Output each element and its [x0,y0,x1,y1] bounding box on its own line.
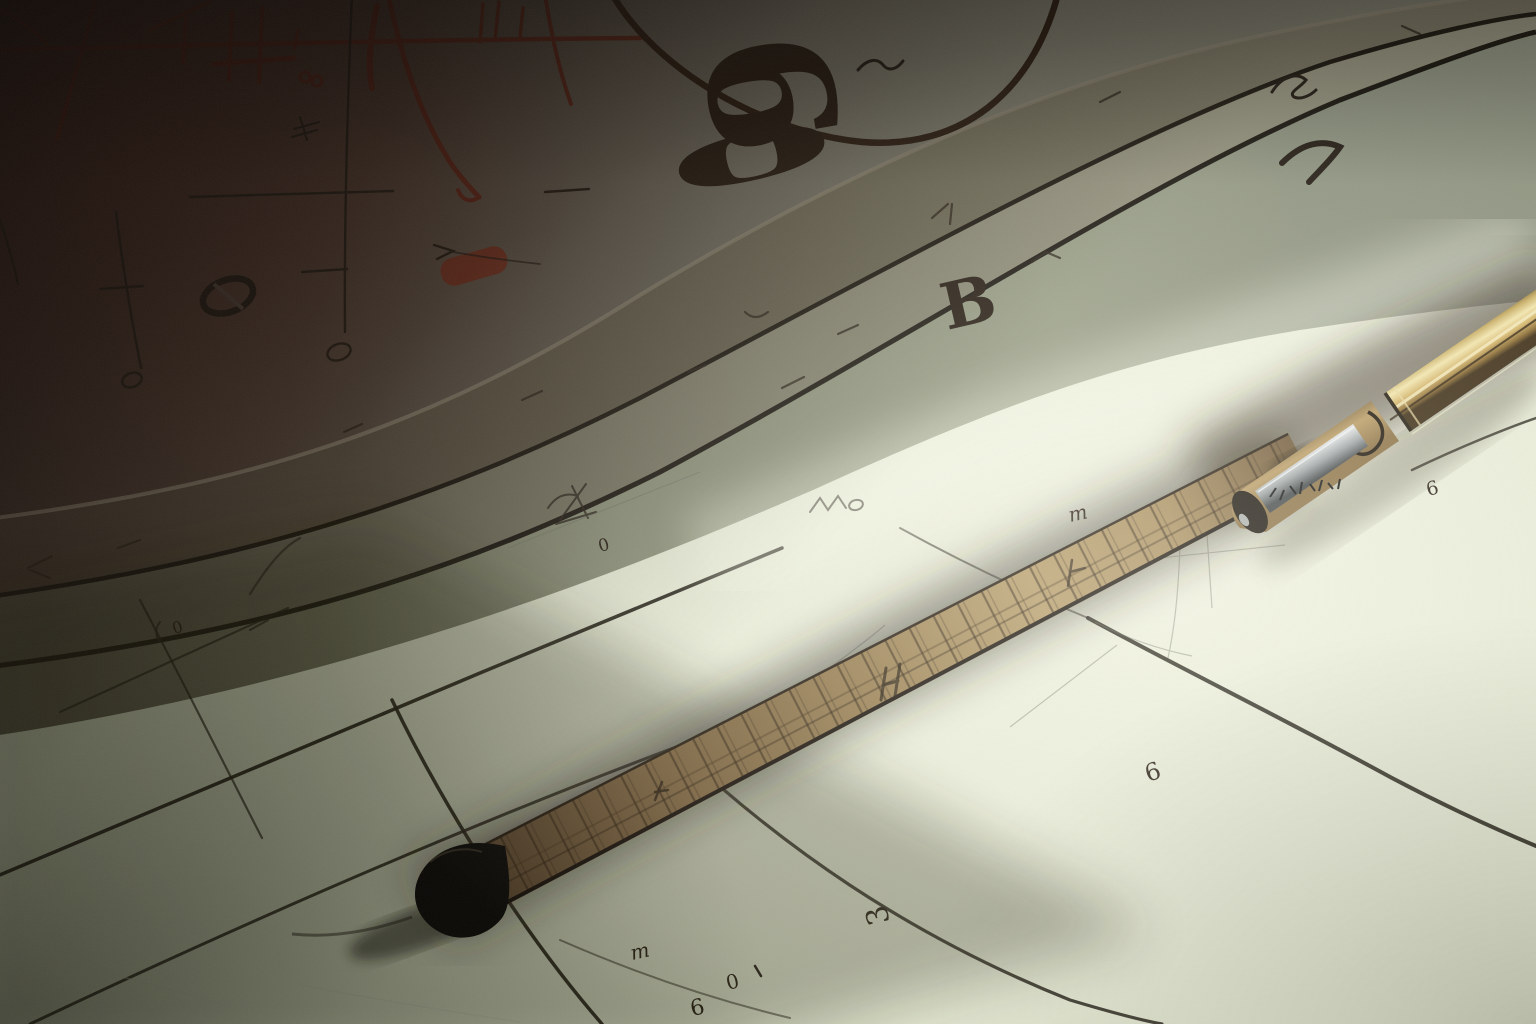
scene-illustration: 6 0 B 0 m 6 0 [0,0,1536,1024]
drafting-desk-scene: 6 0 B 0 m 6 0 [0,0,1536,1024]
paper-grain-texture [0,0,1536,1024]
